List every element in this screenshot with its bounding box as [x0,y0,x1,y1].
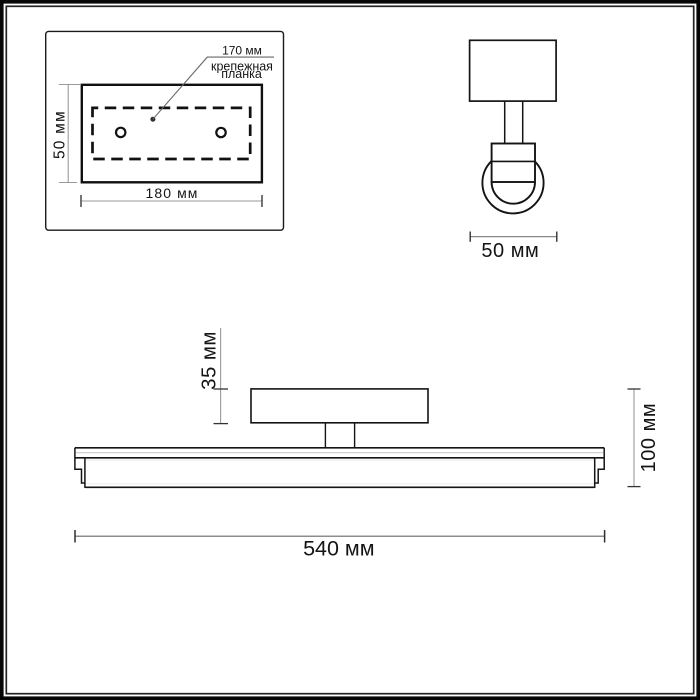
svg-text:180 мм: 180 мм [145,185,198,201]
svg-text:50 мм: 50 мм [52,110,69,159]
svg-text:50 мм: 50 мм [481,240,539,262]
svg-text:35 мм: 35 мм [197,331,220,390]
svg-text:100 мм: 100 мм [638,403,660,472]
svg-text:планка: планка [221,67,262,81]
svg-text:540 мм: 540 мм [303,537,374,561]
svg-text:170 мм: 170 мм [222,43,262,57]
